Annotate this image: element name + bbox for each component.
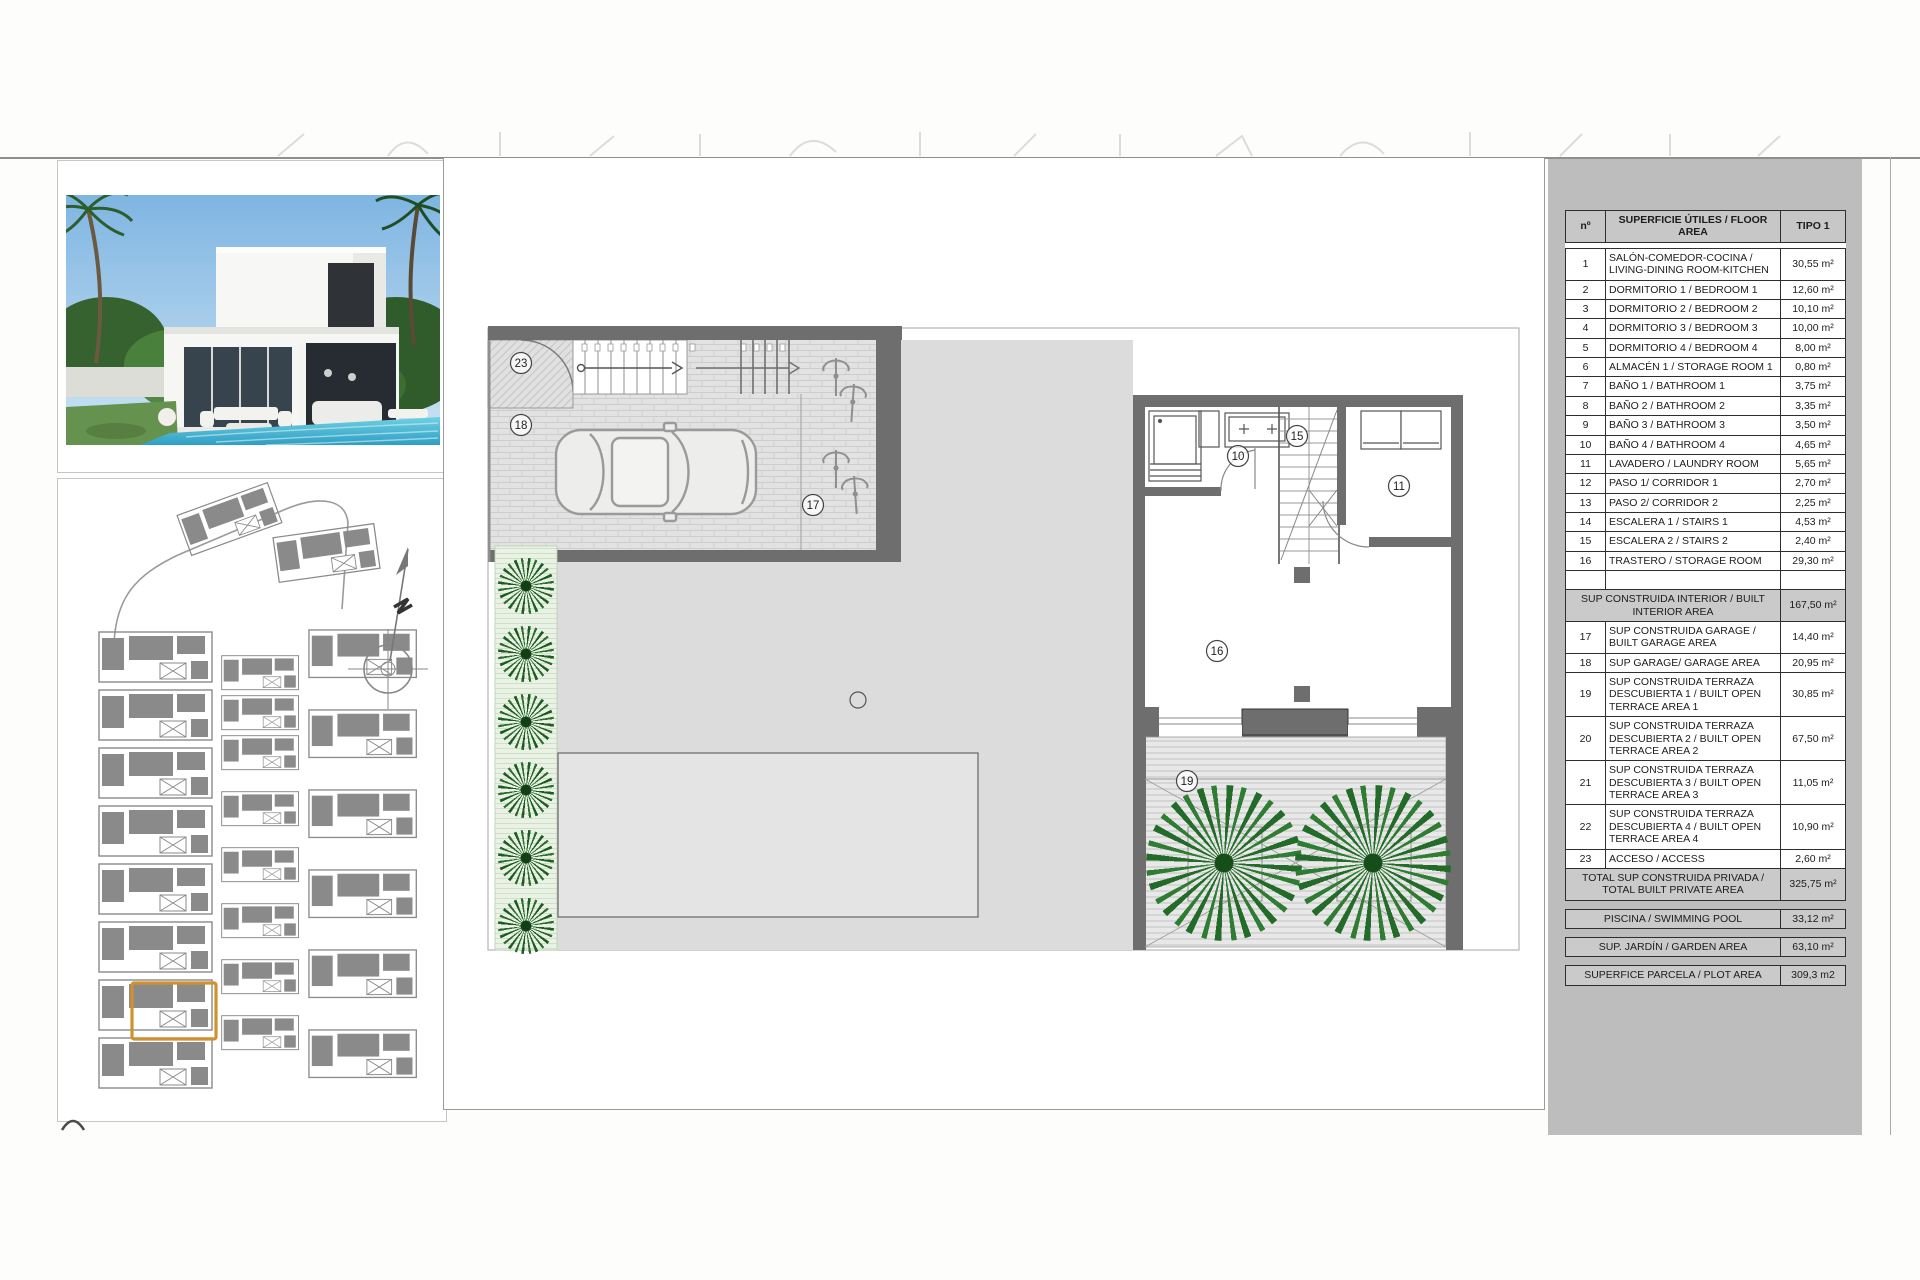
tag-23: 23 [511,353,532,374]
palm-tree [1146,785,1302,941]
table-row: 22 SUP CONSTRUIDA TERRAZA DESCUBIERTA 4 … [1565,804,1846,849]
table-row: 14 ESCALERA 1 / STAIRS 1 4,53 m² [1565,512,1846,532]
sheet-right-border [1890,157,1891,1135]
header-num: nº [1566,211,1606,242]
table-row: 4 DORMITORIO 3 / BEDROOM 3 10,00 m² [1565,318,1846,338]
interior-total-row: SUP CONSTRUIDA INTERIOR / BUILT INTERIOR… [1565,589,1846,622]
svg-text:17: 17 [807,500,820,512]
svg-text:16: 16 [1211,646,1224,658]
car-top-view [556,423,756,521]
table-row: 7 BAÑO 1 / BATHROOM 1 3,75 m² [1565,376,1846,396]
total-row: TOTAL SUP CONSTRUIDA PRIVADA / TOTAL BUI… [1565,868,1846,901]
table-row: 9 BAÑO 3 / BATHROOM 3 3,50 m² [1565,415,1846,435]
laundry-machines [1361,411,1441,449]
svg-text:11: 11 [1393,481,1405,493]
floorplan-drawing: 23 18 17 10 15 11 16 19 [444,158,1546,1110]
pool-slab [558,753,978,917]
table-row: 23 ACCESO / ACCESS 2,60 m² [1565,849,1846,869]
revision-arc-mark [60,1118,86,1132]
summary-row: SUP. JARDÍN / GARDEN AREA 63,10 m² [1565,937,1846,957]
extra-rows: PISCINA / SWIMMING POOL 33,12 m² SUP. JA… [1565,901,1846,986]
table-row: 21 SUP CONSTRUIDA TERRAZA DESCUBIERTA 3 … [1565,760,1846,805]
tag-15: 15 [1287,426,1308,447]
tag-10: 10 [1228,446,1249,467]
siteplan-card [57,478,447,1122]
summary-row: PISCINA / SWIMMING POOL 33,12 m² [1565,909,1846,929]
table-row: 20 SUP CONSTRUIDA TERRAZA DESCUBIERTA 2 … [1565,716,1846,761]
area-table: nº SUPERFICIE ÚTILES / FLOOR AREA TIPO 1… [1565,210,1846,986]
summary-row: SUPERFICE PARCELA / PLOT AREA 309,3 m2 [1565,965,1846,985]
table-row: 18 SUP GARAGE/ GARAGE AREA 20,95 m² [1565,653,1846,673]
table-row: 19 SUP CONSTRUIDA TERRAZA DESCUBIERTA 1 … [1565,672,1846,717]
tag-17: 17 [803,495,824,516]
svg-text:18: 18 [515,420,528,432]
tag-11: 11 [1389,476,1410,497]
hedge-plant [498,626,554,682]
tag-19: 19 [1177,771,1198,792]
villa-photo [66,195,440,445]
table-row: 5 DORMITORIO 4 / BEDROOM 4 8,00 m² [1565,338,1846,358]
tag-18: 18 [511,415,532,436]
siteplan-drawing [58,479,446,1121]
spacer-row [1565,570,1846,590]
ghost-watermark [270,126,1860,158]
table-row: 15 ESCALERA 2 / STAIRS 2 2,40 m² [1565,531,1846,551]
svg-text:19: 19 [1181,776,1194,788]
table-row: 12 PASO 1/ CORRIDOR 1 2,70 m² [1565,473,1846,493]
svg-text:23: 23 [515,358,528,370]
table-row: 13 PASO 2/ CORRIDOR 2 2,25 m² [1565,493,1846,513]
tag-16: 16 [1207,641,1228,662]
hedge-plant [498,830,554,886]
area-table-panel: nº SUPERFICIE ÚTILES / FLOOR AREA TIPO 1… [1548,159,1862,1135]
table-row: 16 TRASTERO / STORAGE ROOM 29,30 m² [1565,551,1846,571]
svg-text:10: 10 [1232,451,1245,463]
table-row: 17 SUP CONSTRUIDA GARAGE / BUILT GARAGE … [1565,621,1846,654]
drain-circle [850,692,866,708]
site-boundary [114,501,348,644]
palm-tree [1295,785,1451,941]
hedge-plant [498,694,554,750]
floorplan-sheet: 23 18 17 10 15 11 16 19 [443,158,1545,1110]
hedge-plant [498,898,554,954]
plan-sheet-page: 23 18 17 10 15 11 16 19 nº SUPERFICIE ÚT… [0,0,1920,1280]
villa-photo-card [57,160,447,473]
table-row: 2 DORMITORIO 1 / BEDROOM 1 12,60 m² [1565,280,1846,300]
hedge-plant [498,762,554,818]
table-row: 3 DORMITORIO 2 / BEDROOM 2 10,10 m² [1565,299,1846,319]
table-row: 8 BAÑO 2 / BATHROOM 2 3,35 m² [1565,396,1846,416]
svg-text:15: 15 [1291,431,1304,443]
hedge-plant [498,558,554,614]
table-row: 1 SALÓN-COMEDOR-COCINA / LIVING-DINING R… [1565,248,1846,281]
access-entry [488,340,573,408]
header-label: SUPERFICIE ÚTILES / FLOOR AREA [1606,211,1781,242]
table-row: 10 BAÑO 4 / BATHROOM 4 4,65 m² [1565,435,1846,455]
table-row: 11 LAVADERO / LAUNDRY ROOM 5,65 m² [1565,454,1846,474]
table-header-row: nº SUPERFICIE ÚTILES / FLOOR AREA TIPO 1 [1565,210,1846,243]
outdoor-rows: 17 SUP CONSTRUIDA GARAGE / BUILT GARAGE … [1565,621,1846,869]
header-type: TIPO 1 [1781,211,1845,242]
table-row: 6 ALMACÉN 1 / STORAGE ROOM 1 0,80 m² [1565,357,1846,377]
rooms-rows: 1 SALÓN-COMEDOR-COCINA / LIVING-DINING R… [1565,248,1846,571]
